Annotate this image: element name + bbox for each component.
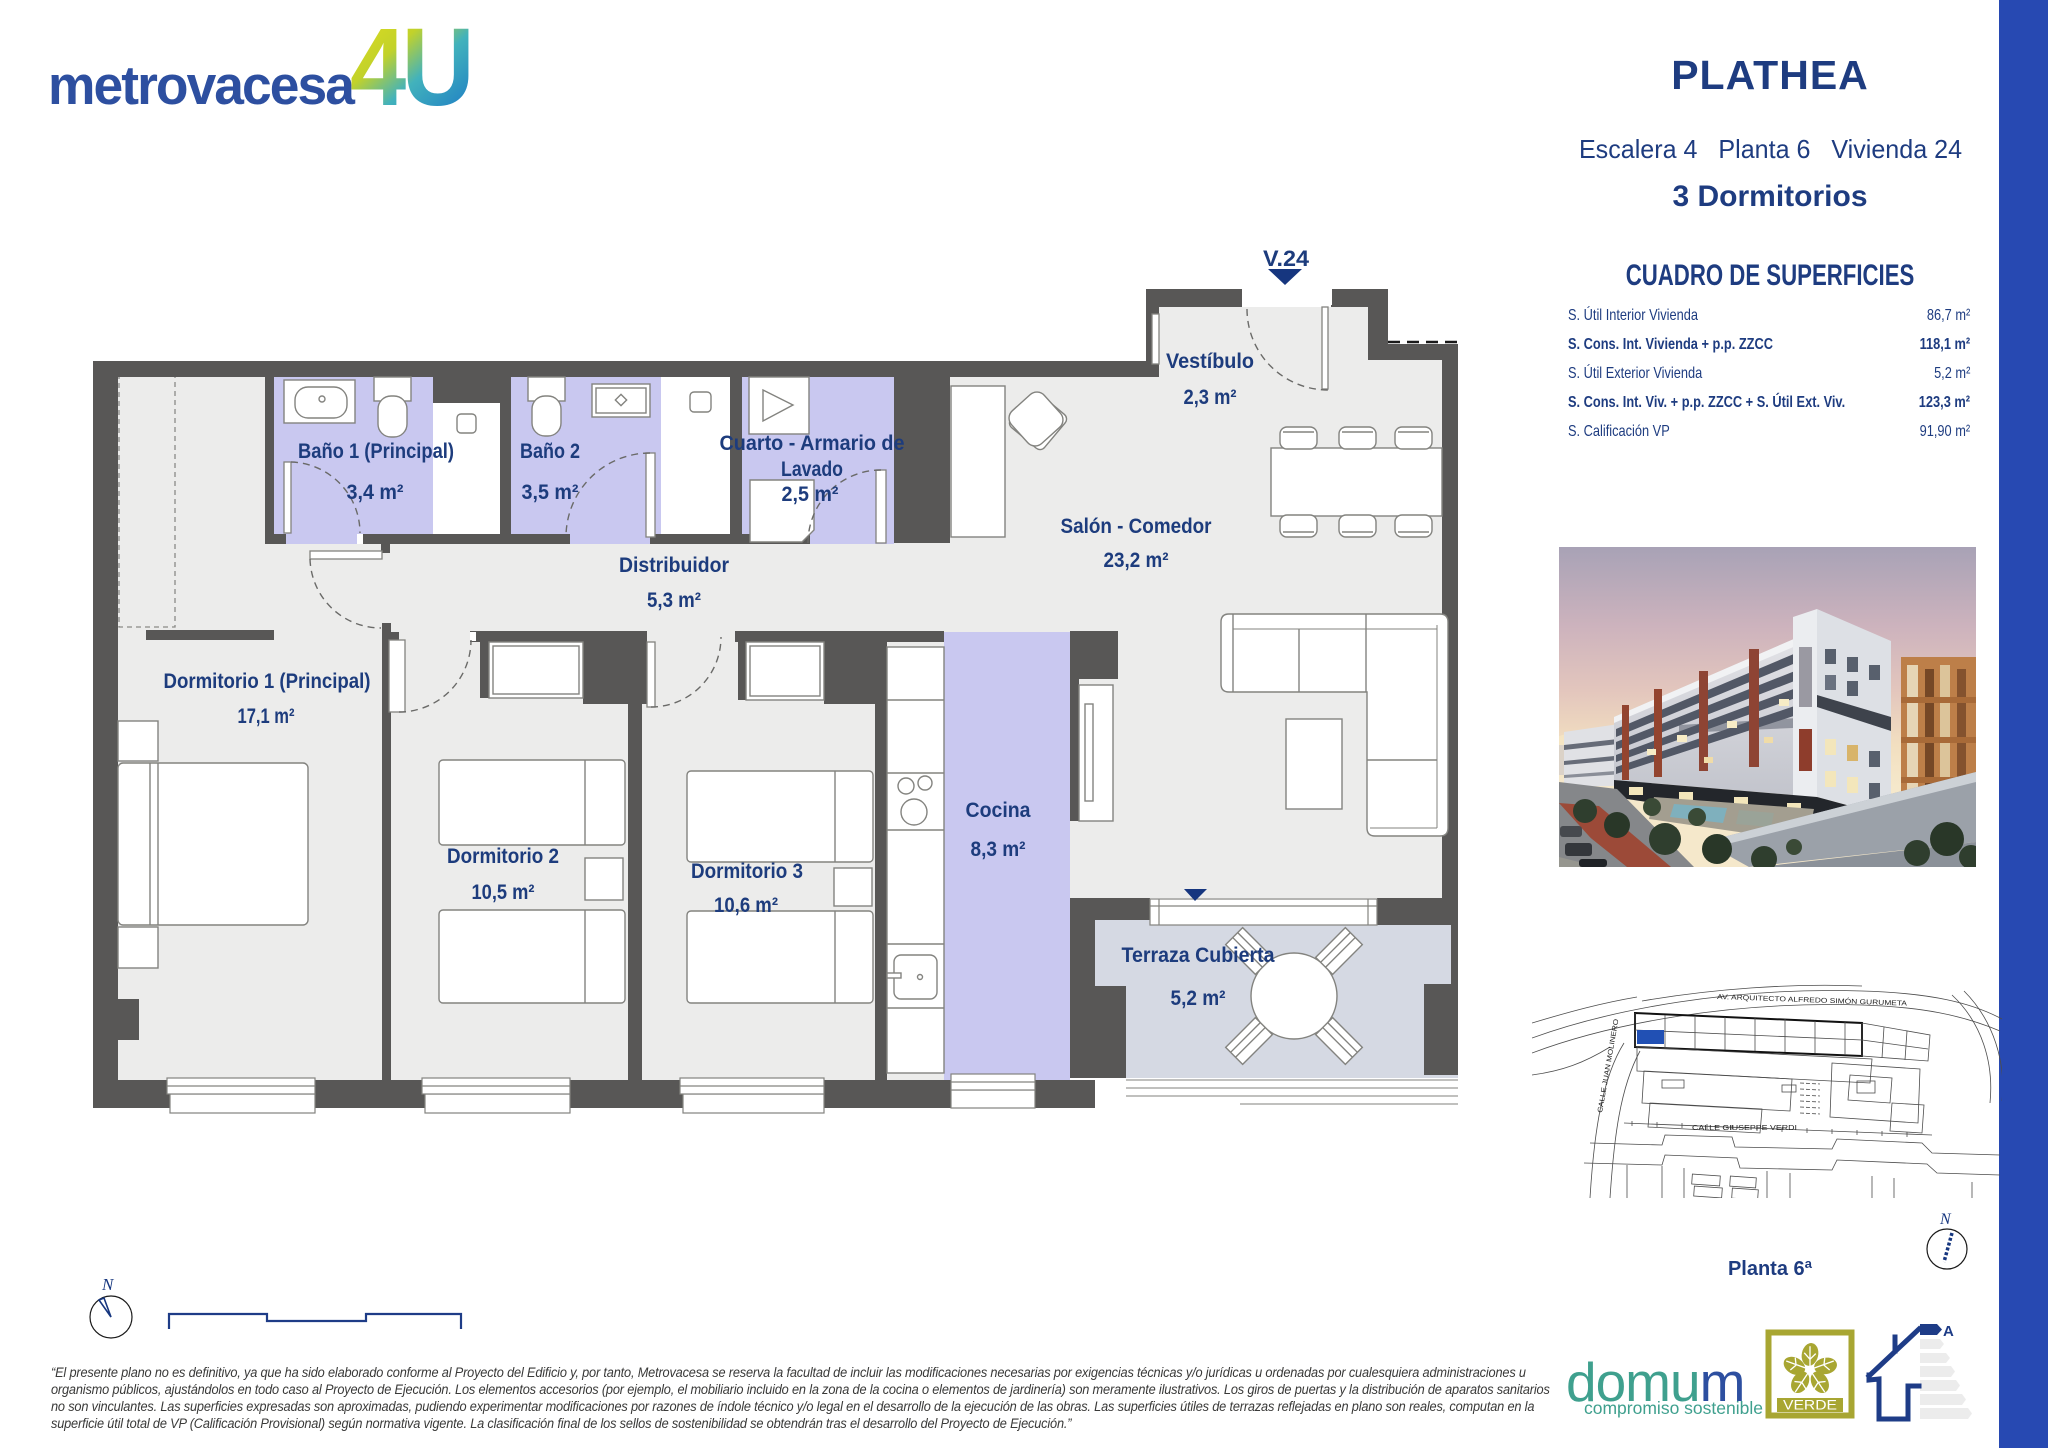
svg-text:Salón - Comedor: Salón - Comedor xyxy=(1061,515,1212,538)
svg-text:VERDE: VERDE xyxy=(1783,1398,1837,1413)
svg-text:3,5 m²: 3,5 m² xyxy=(522,481,579,504)
svg-text:Distribuidor: Distribuidor xyxy=(619,554,729,577)
svg-text:2,5 m²: 2,5 m² xyxy=(782,483,839,506)
svg-text:3,4 m²: 3,4 m² xyxy=(347,481,404,504)
svg-text:Dormitorio 2: Dormitorio 2 xyxy=(447,845,559,868)
svg-text:17,1 m²: 17,1 m² xyxy=(238,705,295,728)
svg-text:Vestíbulo: Vestíbulo xyxy=(1166,350,1254,373)
svg-text:23,2 m²: 23,2 m² xyxy=(1104,549,1169,572)
svg-text:N: N xyxy=(1939,1211,1952,1228)
svg-text:10,5 m²: 10,5 m² xyxy=(472,881,535,904)
svg-text:8,3 m²: 8,3 m² xyxy=(971,838,1026,861)
svg-text:Cocina: Cocina xyxy=(966,799,1031,822)
svg-text:Dormitorio 1 (Principal): Dormitorio 1 (Principal) xyxy=(164,670,371,693)
svg-text:N: N xyxy=(101,1275,115,1294)
svg-text:Dormitorio 3: Dormitorio 3 xyxy=(691,860,803,883)
svg-text:V.24: V.24 xyxy=(1263,246,1310,271)
svg-text:5,3 m²: 5,3 m² xyxy=(647,589,701,612)
svg-text:10,6 m²: 10,6 m² xyxy=(714,894,778,917)
svg-text:2,3 m²: 2,3 m² xyxy=(1184,386,1237,409)
svg-text:Lavado: Lavado xyxy=(781,458,843,481)
svg-text:Baño 2: Baño 2 xyxy=(520,440,580,463)
svg-text:Cuarto - Armario de: Cuarto - Armario de xyxy=(720,432,905,455)
svg-text:5,2 m²: 5,2 m² xyxy=(1171,987,1226,1010)
svg-text:Baño 1 (Principal): Baño 1 (Principal) xyxy=(298,440,454,463)
svg-text:Terraza Cubierta: Terraza Cubierta xyxy=(1122,944,1275,967)
svg-text:A: A xyxy=(1943,1323,1954,1340)
